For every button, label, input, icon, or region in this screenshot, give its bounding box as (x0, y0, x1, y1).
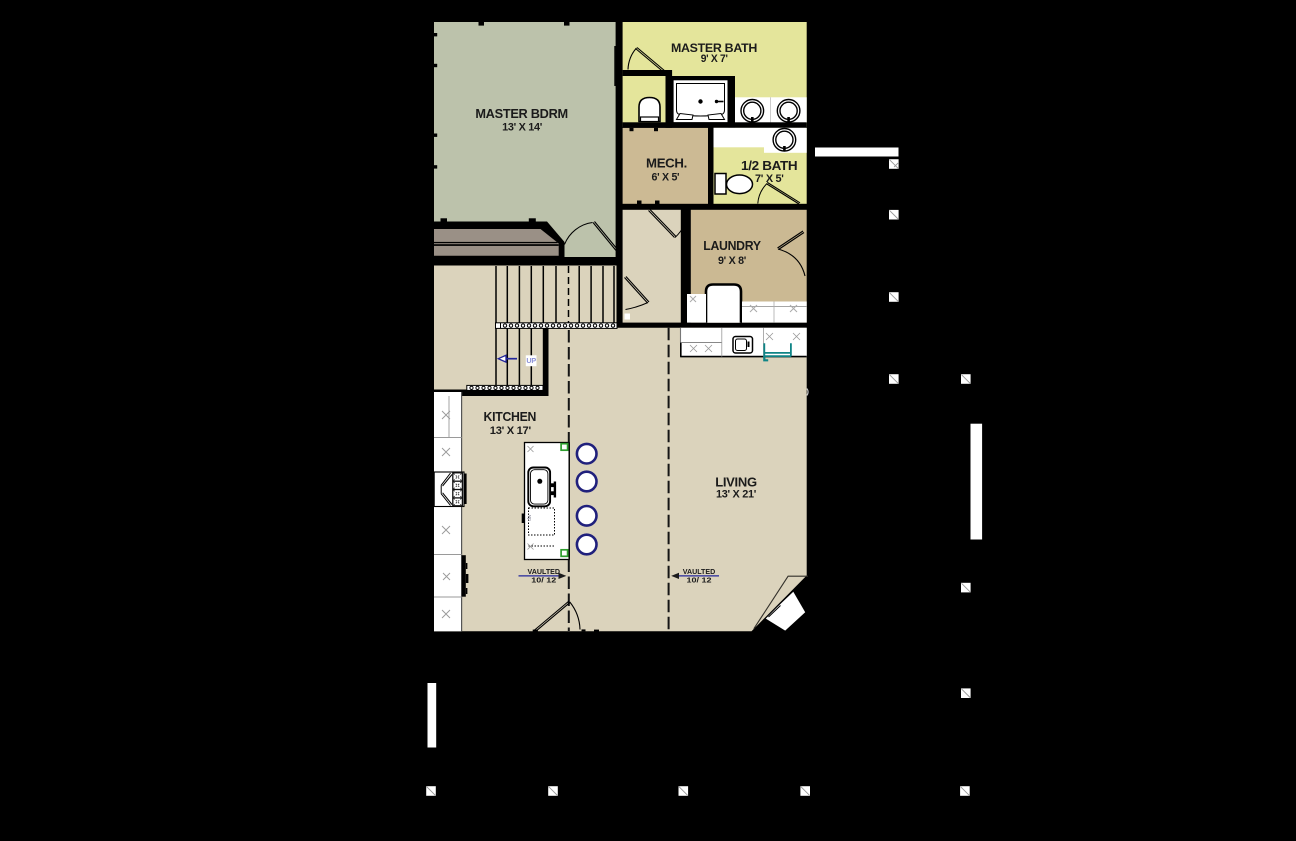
svg-text:dw: dw (527, 514, 533, 521)
svg-text:UP: UP (526, 356, 536, 365)
svg-text:9' X 8': 9' X 8' (718, 255, 747, 267)
svg-text:13' X 14': 13' X 14' (502, 121, 543, 133)
svg-text:MECH.: MECH. (646, 157, 687, 171)
svg-text:10/ 12: 10/ 12 (531, 575, 556, 584)
svg-text:MASTER BDRM: MASTER BDRM (475, 106, 568, 121)
svg-text:9' X 7': 9' X 7' (701, 53, 729, 65)
svg-text:KITCHEN: KITCHEN (484, 409, 537, 424)
svg-text:7' X 5': 7' X 5' (755, 173, 784, 185)
svg-text:10/ 12: 10/ 12 (687, 575, 712, 584)
svg-text:13' X 21': 13' X 21' (716, 489, 757, 501)
svg-text:6' X 5': 6' X 5' (652, 171, 680, 183)
svg-text:LAUNDRY: LAUNDRY (703, 239, 761, 253)
svg-text:1/2 BATH: 1/2 BATH (741, 159, 798, 173)
svg-text:LIVING: LIVING (715, 474, 757, 489)
svg-text:13' X 17': 13' X 17' (490, 425, 532, 437)
